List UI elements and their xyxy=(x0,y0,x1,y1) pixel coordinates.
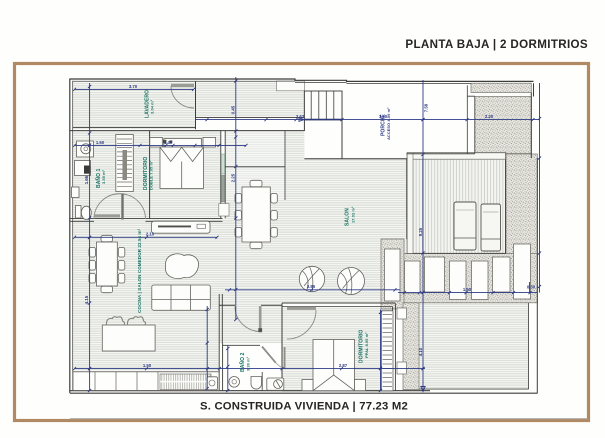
svg-text:1.50: 1.50 xyxy=(143,363,152,368)
svg-text:ACCESO 4.59 m²: ACCESO 4.59 m² xyxy=(386,107,391,140)
svg-text:COCINA | SALON COMEDOR 22.54 m: COCINA | SALON COMEDOR 22.54 m² xyxy=(137,228,142,313)
svg-text:3.70: 3.70 xyxy=(129,84,138,89)
svg-text:0.45: 0.45 xyxy=(231,105,236,114)
svg-text:S. CONSTRUIDA VIVIENDA | 77.23: S. CONSTRUIDA VIVIENDA | 77.23 M2 xyxy=(200,401,408,413)
svg-text:1.50: 1.50 xyxy=(96,140,105,145)
svg-text:4.15: 4.15 xyxy=(84,295,89,304)
svg-text:4.10: 4.10 xyxy=(418,347,423,356)
svg-text:3.95: 3.95 xyxy=(307,284,316,289)
svg-text:2.20: 2.20 xyxy=(485,114,494,119)
svg-text:3.04 m²: 3.04 m² xyxy=(149,99,154,114)
svg-text:PLANTA BAJA | 2 DORMITRIOS: PLANTA BAJA | 2 DORMITRIOS xyxy=(405,38,588,51)
svg-text:3.30 m²: 3.30 m² xyxy=(246,356,251,371)
svg-text:9.25: 9.25 xyxy=(418,227,423,236)
svg-text:7.58: 7.58 xyxy=(424,103,429,112)
svg-text:PPAL 8.95 m²: PPAL 8.95 m² xyxy=(364,332,369,358)
svg-text:1.66: 1.66 xyxy=(84,175,89,184)
svg-text:2.25: 2.25 xyxy=(231,173,236,182)
svg-text:1.40: 1.40 xyxy=(164,140,173,145)
svg-text:0.30: 0.30 xyxy=(527,285,536,290)
svg-text:17.01 m²: 17.01 m² xyxy=(350,206,355,223)
svg-text:1.50: 1.50 xyxy=(463,287,472,292)
svg-text:DOBLE 7.95 m²: DOBLE 7.95 m² xyxy=(148,160,153,190)
svg-text:2.10: 2.10 xyxy=(146,232,155,237)
svg-text:3.55 m²: 3.55 m² xyxy=(101,169,106,184)
svg-text:2.87: 2.87 xyxy=(339,363,348,368)
svg-text:3.63: 3.63 xyxy=(296,114,305,119)
